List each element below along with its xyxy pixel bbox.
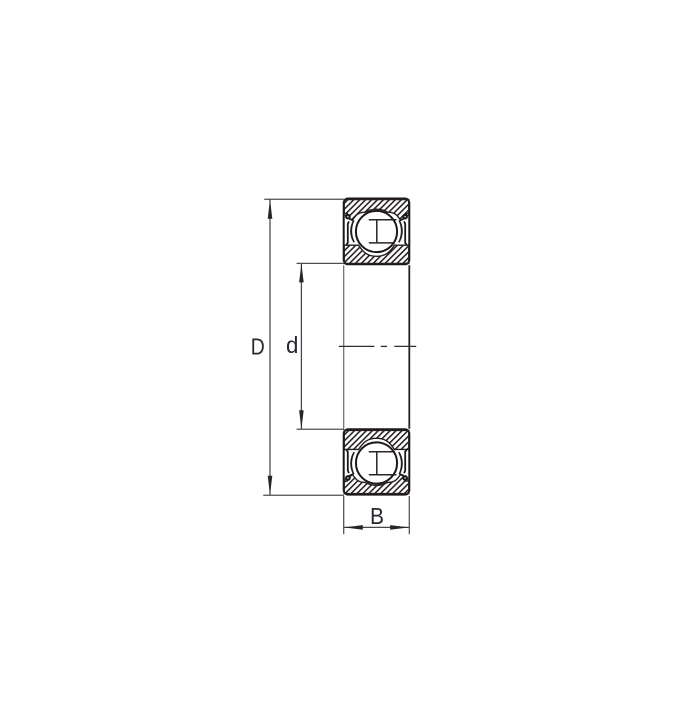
svg-text:D: D: [251, 334, 265, 360]
svg-text:d: d: [286, 332, 298, 358]
svg-text:B: B: [370, 503, 384, 529]
